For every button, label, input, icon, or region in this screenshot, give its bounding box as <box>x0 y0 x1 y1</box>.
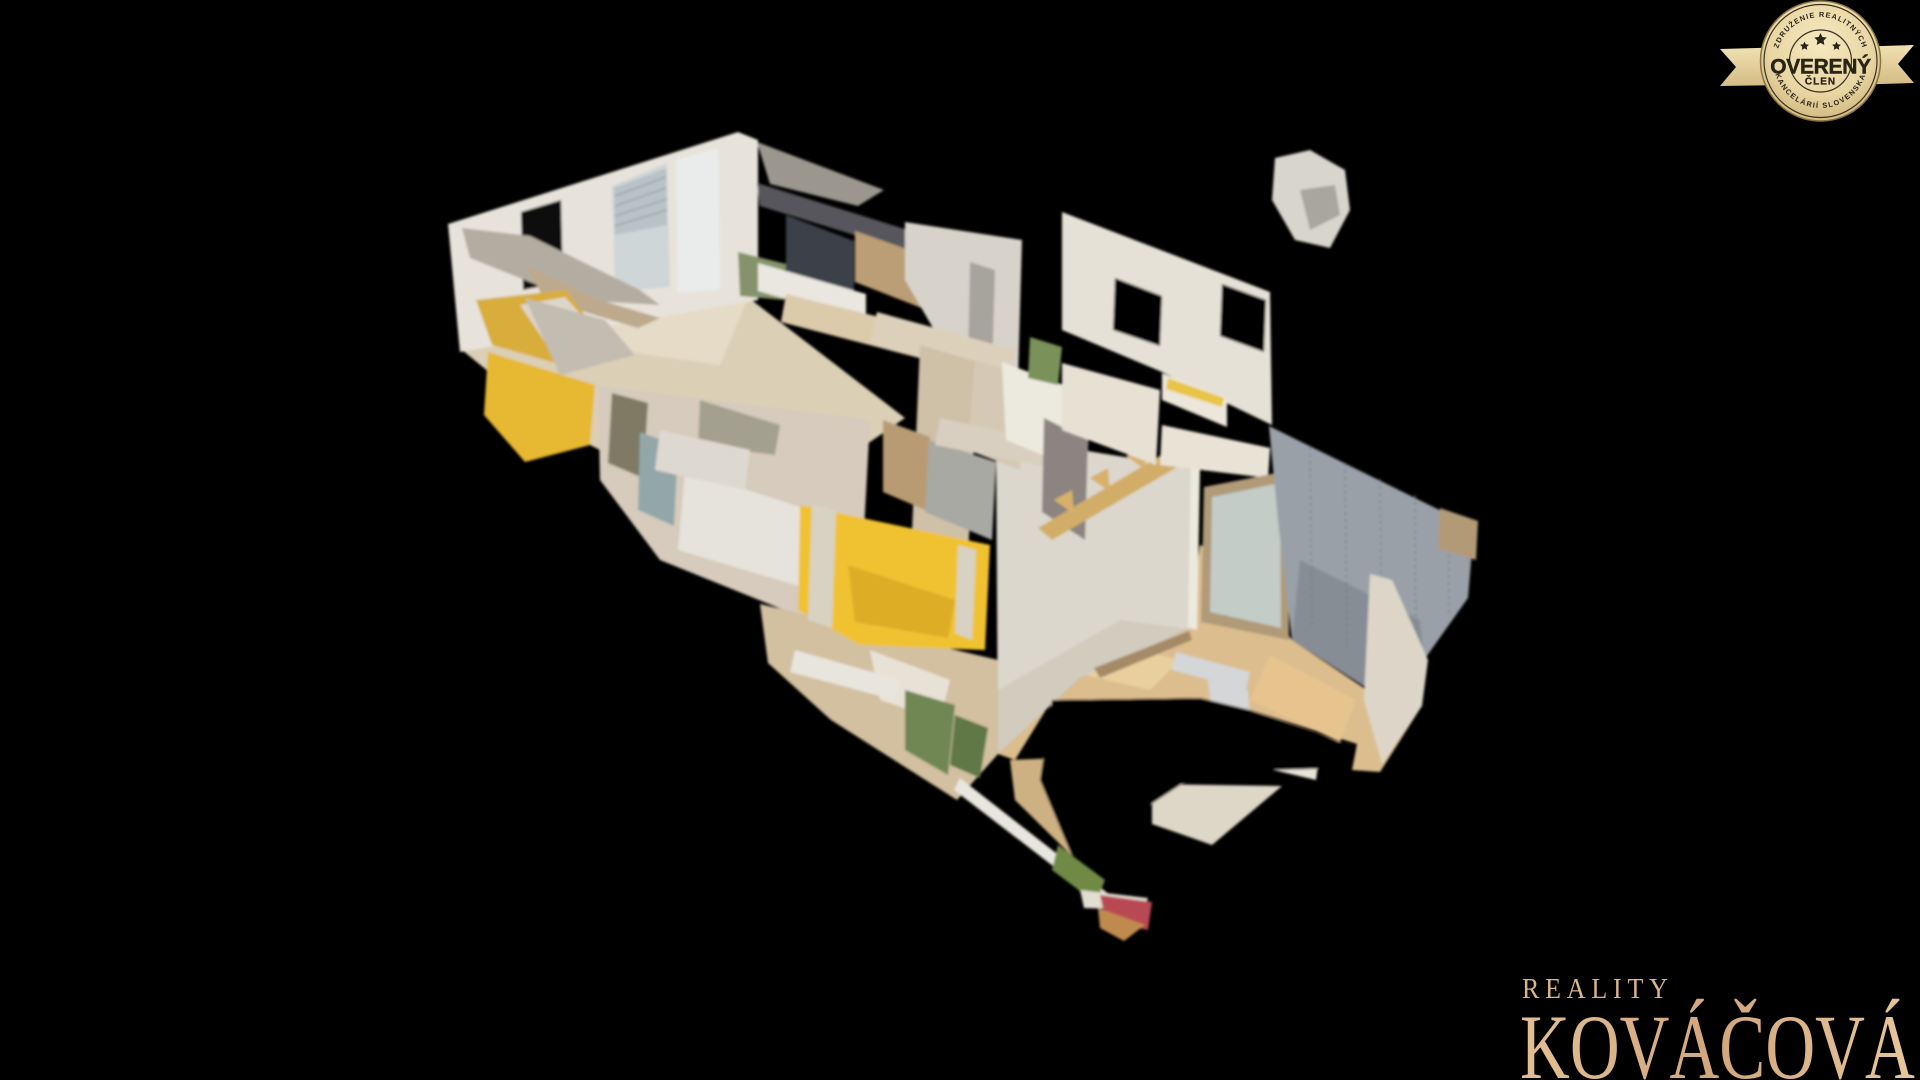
svg-text:OVERENÝ: OVERENÝ <box>1770 55 1871 79</box>
svg-text:KOVÁČOVÁ: KOVÁČOVÁ <box>1520 995 1915 1080</box>
svg-text:ČLEN: ČLEN <box>1805 75 1836 88</box>
